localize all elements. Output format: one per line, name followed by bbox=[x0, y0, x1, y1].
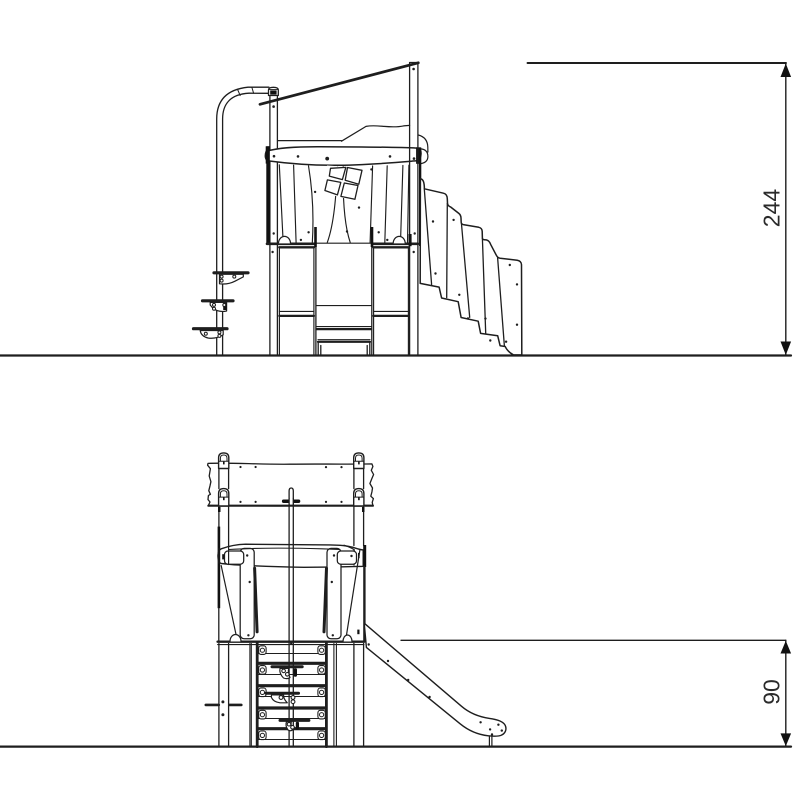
svg-text:90: 90 bbox=[759, 679, 785, 705]
svg-text:244: 244 bbox=[759, 189, 785, 228]
